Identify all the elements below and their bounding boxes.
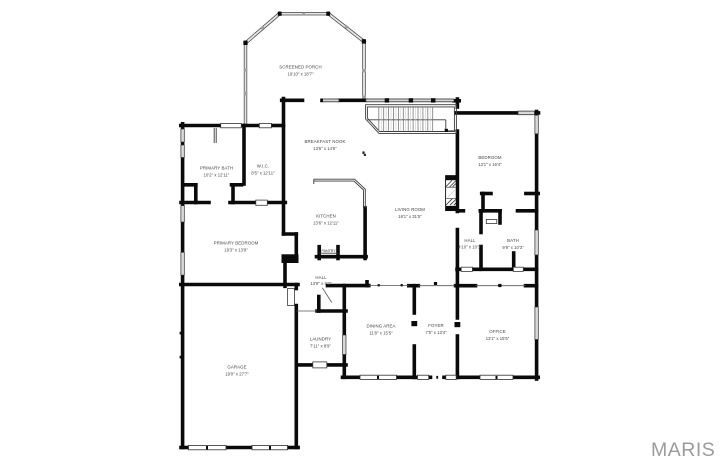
svg-text:19'10" x 18'7": 19'10" x 18'7"	[288, 72, 314, 77]
svg-text:4'10" x 10'3": 4'10" x 10'3"	[458, 245, 482, 250]
svg-text:BATH: BATH	[507, 238, 519, 243]
svg-text:7'11" x 8'9": 7'11" x 8'9"	[310, 344, 331, 349]
svg-text:MARIS: MARIS	[651, 439, 715, 461]
svg-text:HALL: HALL	[315, 275, 327, 280]
svg-text:9'9" x 10'3": 9'9" x 10'3"	[502, 245, 524, 250]
svg-text:13'8" x 9'2": 13'8" x 9'2"	[310, 281, 332, 286]
svg-text:BREAKFAST NOOK: BREAKFAST NOOK	[305, 139, 346, 144]
svg-text:19'0" x 27'7": 19'0" x 27'7"	[225, 372, 249, 377]
svg-text:SCREENED PORCH: SCREENED PORCH	[279, 65, 321, 70]
svg-text:PRIMARY BEDROOM: PRIMARY BEDROOM	[214, 241, 259, 246]
svg-text:DINING AREA: DINING AREA	[366, 324, 395, 329]
svg-text:7'5" x 13'4": 7'5" x 13'4"	[425, 330, 447, 335]
svg-text:HALL: HALL	[464, 238, 476, 243]
svg-text:GARAGE: GARAGE	[227, 365, 246, 370]
svg-text:FOYER: FOYER	[428, 323, 443, 328]
svg-text:8'5" x 12'11": 8'5" x 12'11"	[251, 171, 275, 176]
svg-text:BEDROOM: BEDROOM	[478, 155, 501, 160]
svg-text:KITCHEN: KITCHEN	[316, 214, 336, 219]
svg-text:PRIMARY BATH: PRIMARY BATH	[200, 166, 233, 171]
svg-text:13'6" x 14'6": 13'6" x 14'6"	[313, 146, 337, 151]
svg-text:11'8" x 15'5": 11'8" x 15'5"	[369, 331, 393, 336]
svg-text:19'3" x 13'9": 19'3" x 13'9"	[224, 248, 248, 253]
svg-text:13'1" x 15'5": 13'1" x 15'5"	[486, 336, 510, 341]
svg-text:13'1" x 16'4": 13'1" x 16'4"	[478, 162, 502, 167]
svg-text:W.I.C.: W.I.C.	[257, 164, 269, 169]
svg-text:LIVING ROOM: LIVING ROOM	[395, 207, 425, 212]
svg-text:13'6" x 12'11": 13'6" x 12'11"	[313, 221, 339, 226]
svg-text:OFFICE: OFFICE	[489, 329, 506, 334]
svg-text:10'2" x 12'11": 10'2" x 12'11"	[204, 173, 230, 178]
svg-text:16'1" x 31'5": 16'1" x 31'5"	[398, 214, 422, 219]
svg-text:PANTRY: PANTRY	[321, 249, 336, 253]
svg-text:LAUNDRY: LAUNDRY	[310, 337, 331, 342]
